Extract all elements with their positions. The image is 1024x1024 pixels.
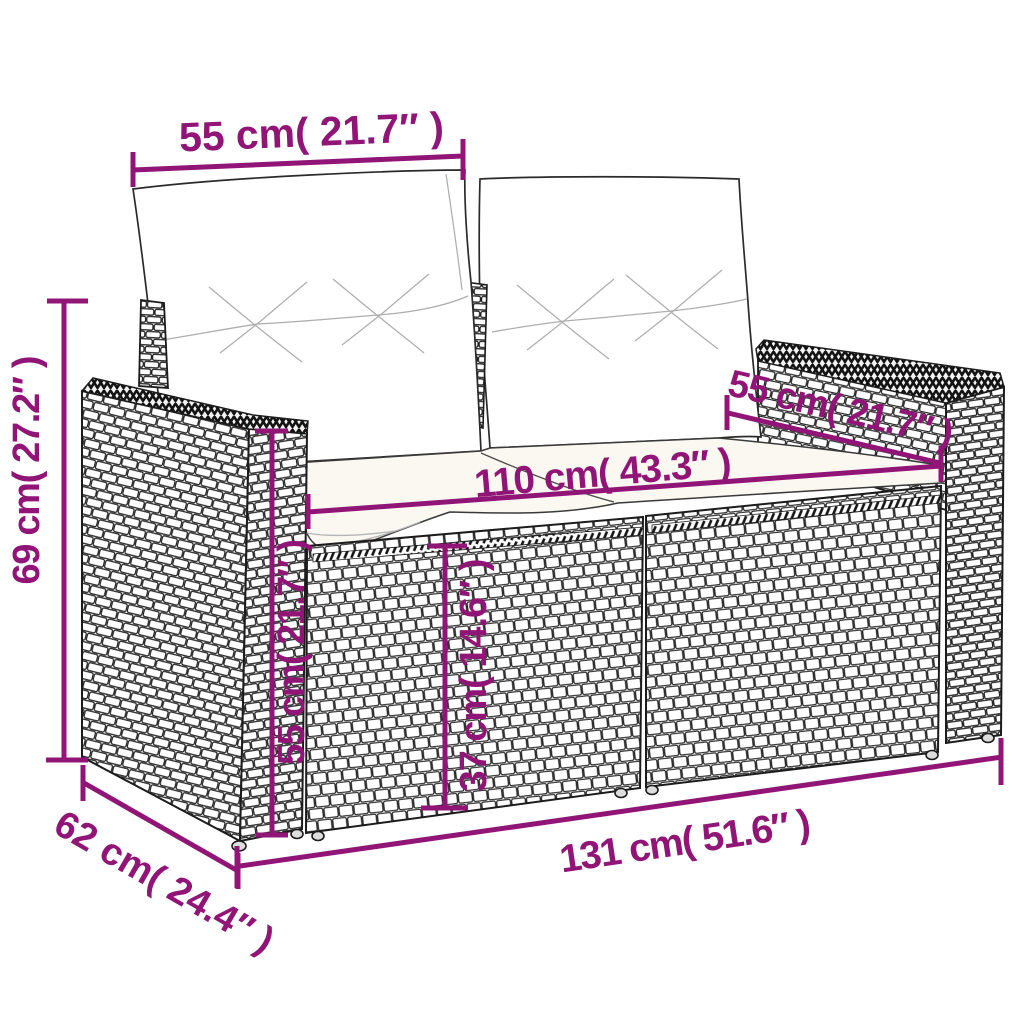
svg-text:55 cm( 21.7″ ): 55 cm( 21.7″ ) [271,539,313,765]
svg-text:37 cm( 14.6″ ): 37 cm( 14.6″ ) [453,559,495,792]
svg-text:69 cm( 27.2″ ): 69 cm( 27.2″ ) [6,356,48,585]
